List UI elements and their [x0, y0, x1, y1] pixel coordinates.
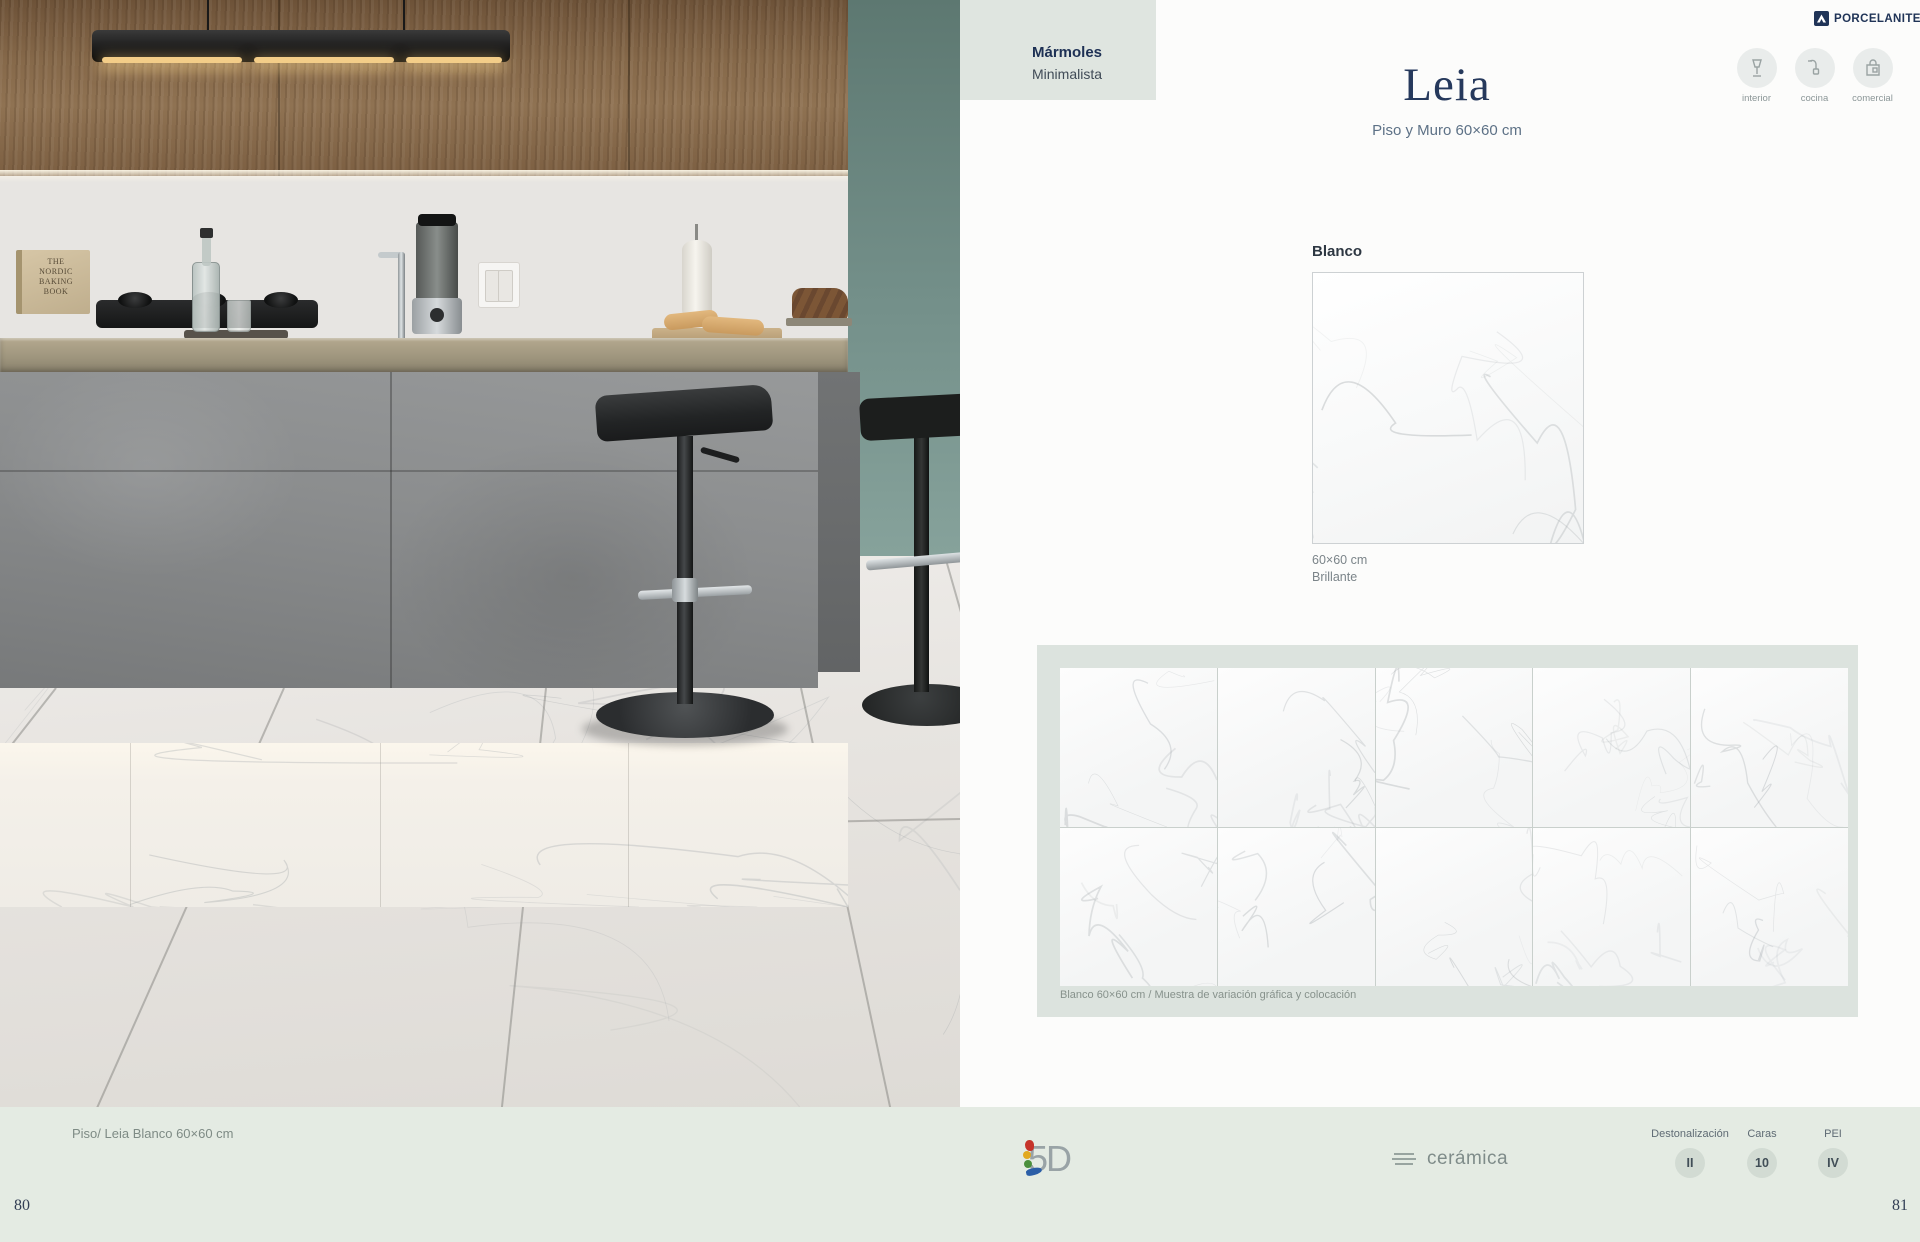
usage-circle — [1853, 48, 1893, 88]
usage-circle — [1737, 48, 1777, 88]
ceramica-logo: cerámica — [1390, 1148, 1508, 1170]
blender-jar — [416, 222, 458, 300]
pendant-lamp — [92, 30, 510, 62]
swatch-finish: Brillante — [1312, 570, 1357, 584]
variation-tile — [1691, 828, 1848, 987]
wall-switch — [478, 262, 520, 308]
variation-panel: Blanco 60×60 cm / Muestra de variación g… — [1037, 645, 1858, 1017]
spec-caras: Caras 10 — [1732, 1128, 1792, 1178]
category-title: Mármoles — [1032, 44, 1156, 61]
variation-caption: Blanco 60×60 cm / Muestra de variación g… — [1060, 989, 1356, 1001]
lamp-cord — [403, 0, 405, 34]
variation-tile — [1691, 668, 1848, 827]
variation-tile — [1218, 668, 1375, 827]
lamp-glow — [102, 57, 242, 63]
cabinet-seam — [278, 0, 280, 176]
variation-tile — [1060, 828, 1217, 987]
usage-circle — [1795, 48, 1835, 88]
backsplash-seam — [130, 743, 131, 907]
blender-dial — [430, 308, 444, 322]
brand-name: PORCELANITE — [1834, 13, 1920, 25]
backsplash-seam — [628, 743, 629, 907]
drinking-glass — [227, 300, 251, 332]
marble-veins — [0, 743, 848, 907]
bottle-neck — [202, 236, 211, 266]
stove-burner — [264, 292, 298, 308]
variation-tile — [1218, 828, 1375, 987]
logo-dot-green — [1024, 1160, 1032, 1168]
variation-tile — [1376, 828, 1533, 987]
marble-veins — [1313, 273, 1584, 544]
category-subtitle: Minimalista — [1032, 66, 1156, 82]
product-title: Leia — [1160, 58, 1734, 112]
lamp-glow — [406, 57, 502, 63]
photo-caption: Piso/ Leia Blanco 60×60 cm — [72, 1126, 234, 1141]
usage-icons: interior cocina comercial — [1728, 48, 1901, 104]
spec-badge: 10 — [1747, 1148, 1777, 1178]
brand-logo: PORCELANITE ® — [1814, 11, 1920, 26]
marble-veins — [1376, 828, 1533, 987]
variation-grid — [1060, 668, 1848, 986]
marble-backsplash — [0, 743, 848, 907]
variation-tile — [1060, 668, 1217, 827]
usage-label: comercial — [1844, 93, 1901, 104]
marble-veins — [1218, 668, 1375, 827]
usage-label: interior — [1728, 93, 1785, 104]
marble-veins — [1218, 828, 1375, 987]
marble-veins — [1691, 668, 1848, 827]
blender-lid — [418, 214, 456, 226]
under-cabinet-light — [0, 170, 848, 182]
faucet — [398, 252, 405, 342]
footer-strip — [0, 1107, 1920, 1242]
spec-badge: II — [1675, 1148, 1705, 1178]
lamp-icon — [1746, 57, 1768, 79]
usage-interior: interior — [1728, 48, 1785, 104]
usage-label: cocina — [1786, 93, 1843, 104]
porcelanite-mark-icon — [1814, 11, 1829, 26]
swatch-size: 60×60 cm — [1312, 553, 1367, 567]
spec-pei: PEI IV — [1803, 1128, 1863, 1178]
teal-wall — [848, 0, 960, 556]
usage-cocina: cocina — [1786, 48, 1843, 104]
spec-badge: IV — [1818, 1148, 1848, 1178]
bar-stool-1-collar — [672, 578, 698, 602]
marble-veins — [1376, 668, 1533, 827]
marble-veins — [1060, 828, 1217, 987]
variation-tile — [1533, 668, 1690, 827]
logo-dot-red — [1025, 1140, 1034, 1151]
spec-destonalizacion: Destonalización II — [1635, 1128, 1745, 1178]
tile-swatch — [1312, 272, 1584, 544]
page-number-right: 81 — [1876, 1197, 1908, 1215]
product-subtitle: Piso y Muro 60×60 cm — [1160, 122, 1734, 139]
cabinet-seam — [628, 0, 630, 176]
ceramica-text: cerámica — [1427, 1148, 1508, 1170]
island-seam — [0, 470, 818, 472]
spec-label: Destonalización — [1635, 1128, 1745, 1140]
bread-stand — [786, 318, 852, 326]
marble-veins — [1533, 828, 1690, 987]
water-bottle — [192, 262, 220, 332]
catalog-spread: THE NORDIC BAKING BOOK — [0, 0, 1920, 1242]
bar-stool-1-pole — [677, 436, 693, 704]
bottle-cap — [200, 228, 213, 238]
ceramica-lines-icon — [1390, 1149, 1418, 1169]
faucet-icon — [1804, 57, 1826, 79]
variation-tile — [1376, 668, 1533, 827]
5d-technology-logo: 5D — [1028, 1138, 1084, 1186]
marble-veins — [1533, 668, 1690, 827]
bar-stool-2-seat — [859, 393, 960, 441]
kitchen-photo: THE NORDIC BAKING BOOK — [0, 0, 960, 1107]
marble-veins — [1691, 828, 1848, 987]
swatch-color-name: Blanco — [1312, 243, 1362, 260]
paper-towel-roll — [682, 240, 712, 320]
bread-loaf — [792, 288, 848, 322]
lamp-cord — [207, 0, 209, 34]
marble-veins — [1060, 668, 1217, 827]
countertop — [0, 338, 848, 374]
category-tab[interactable]: Mármoles Minimalista — [960, 0, 1156, 100]
spec-label: Caras — [1732, 1128, 1792, 1140]
island-side-panel — [818, 372, 860, 672]
island-seam — [390, 372, 392, 688]
bag-icon — [1862, 57, 1884, 79]
logo-dot-yellow — [1023, 1151, 1031, 1159]
spec-label: PEI — [1803, 1128, 1863, 1140]
wood-cabinets — [0, 0, 848, 176]
stove-burner — [118, 292, 152, 308]
usage-comercial: comercial — [1844, 48, 1901, 104]
cookbook: THE NORDIC BAKING BOOK — [16, 250, 90, 314]
page-number-left: 80 — [14, 1197, 30, 1215]
lamp-glow — [254, 57, 394, 63]
variation-tile — [1533, 828, 1690, 987]
backsplash-seam — [380, 743, 381, 907]
